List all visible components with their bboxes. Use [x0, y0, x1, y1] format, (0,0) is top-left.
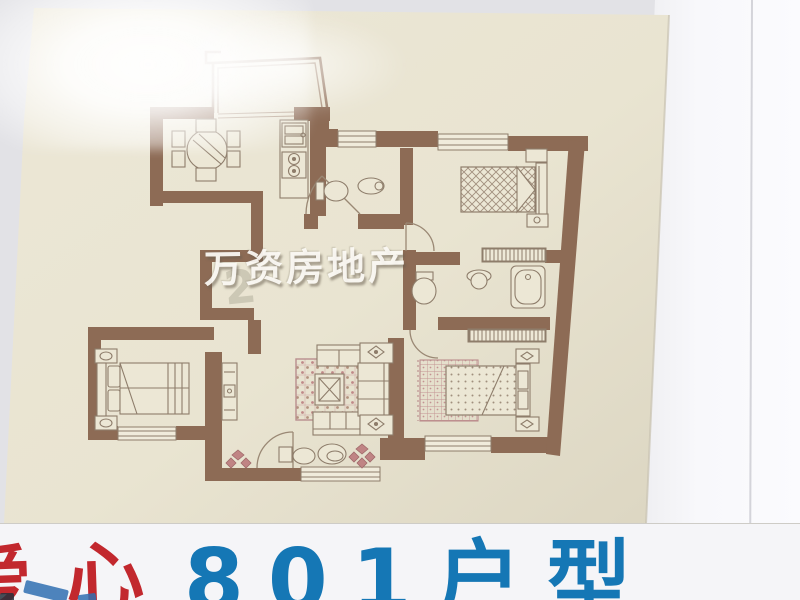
bowl-icon — [318, 444, 346, 464]
wall-kitchen-top — [294, 107, 330, 121]
wall-hall-v3 — [248, 320, 261, 354]
caption-dark-fragment — [0, 593, 14, 600]
wall-bath2-top-right — [545, 250, 569, 263]
toilet-icon — [316, 181, 348, 201]
wall-living-bottom-left — [205, 468, 301, 481]
headboard-icon — [97, 363, 106, 416]
wall-bath1-bottom-left — [304, 214, 318, 229]
kitchen-counter-icon — [280, 120, 308, 198]
wall-bedroom-bl-right — [205, 352, 222, 470]
sofa-icon — [317, 345, 360, 366]
wall-bedroom-br-bottom — [491, 437, 553, 453]
floorplan-drawing — [0, 0, 800, 600]
photo-floorplan-board: 2 万资房地产 爱心 801户型 — [0, 0, 800, 600]
wall-bedroom-tr-left — [400, 148, 413, 225]
plate-icon — [293, 448, 315, 464]
coffee-table-icon — [315, 374, 344, 405]
caption-blue-text: 801户型 — [184, 538, 656, 600]
nightstand-icon — [95, 349, 117, 363]
bedroom-br-furniture — [418, 349, 539, 431]
wall-top-middle — [376, 131, 438, 147]
end-table-icon — [360, 415, 393, 435]
wall-bath1-bottom-right — [358, 214, 404, 229]
pedestal-sink-icon — [358, 178, 384, 194]
tv-cabinet-icon — [222, 363, 237, 420]
radiator-bedroom-tr — [482, 248, 546, 262]
pillow-icon — [518, 371, 528, 389]
sofa-icon — [313, 412, 360, 435]
nightstand-icon — [516, 417, 539, 431]
wall-dining-bottom — [150, 191, 263, 203]
pillow-icon — [518, 391, 528, 409]
window-bath1-top — [338, 131, 376, 147]
nightstand-icon — [516, 349, 539, 363]
caption-band: 爱心 801户型 — [0, 523, 800, 600]
nightstand-icon — [527, 214, 548, 227]
bathtub-icon — [511, 266, 545, 308]
pillow-icon — [108, 390, 120, 411]
plate-icon — [279, 447, 292, 462]
radiator-bath2 — [468, 329, 546, 342]
window-living-balcony — [301, 467, 380, 481]
headboard-icon — [536, 163, 547, 217]
window-bedroom-br-bottom — [425, 436, 491, 451]
wall-dining-top — [150, 107, 214, 119]
wall-bath2-bottom — [438, 317, 550, 330]
wall-bath1-window-post — [326, 129, 338, 147]
window-bedroom-tr-top — [438, 134, 508, 150]
caption-blue-fragment — [78, 593, 97, 600]
photo-background — [0, 0, 800, 600]
end-table-icon — [360, 343, 393, 363]
wall-bedroom-bl-bottom-right — [176, 426, 218, 440]
sofa-icon — [358, 363, 389, 416]
window-bedroom-bl-bottom — [118, 427, 176, 440]
wall-bedroom-bl-top — [88, 327, 214, 340]
nightstand-icon — [526, 149, 547, 162]
pillow-icon — [108, 366, 120, 387]
watermark-text: 万资房地产 — [204, 246, 465, 289]
nightstand-icon — [95, 416, 117, 430]
